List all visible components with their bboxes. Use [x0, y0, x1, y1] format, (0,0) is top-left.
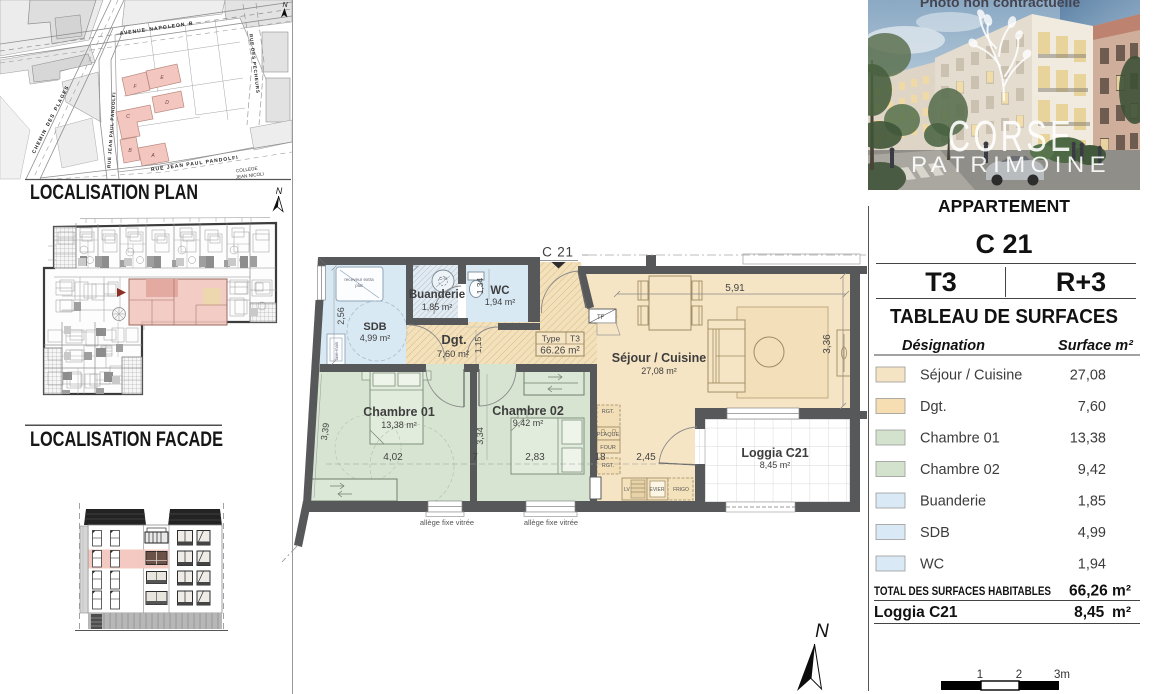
svg-text:13,38: 13,38	[1070, 431, 1106, 447]
svg-text:Désignation: Désignation	[902, 338, 985, 354]
svg-text:C-S: C-S	[439, 276, 447, 281]
svg-text:Chambre 01: Chambre 01	[920, 431, 1000, 447]
svg-text:Chambre 01: Chambre 01	[363, 405, 435, 419]
svg-text:C: C	[126, 114, 130, 120]
svg-text:27,08 m²: 27,08 m²	[641, 366, 677, 376]
svg-text:A: A	[150, 153, 155, 159]
svg-text:R+3: R+3	[1056, 267, 1106, 297]
svg-text:1,15: 1,15	[473, 336, 483, 353]
svg-text:Séjour / Cuisine: Séjour / Cuisine	[920, 368, 1022, 384]
svg-text:Buanderie: Buanderie	[409, 289, 465, 301]
svg-text:TOTAL DES SURFACES HABITABLES: TOTAL DES SURFACES HABITABLES	[874, 584, 1051, 598]
svg-text:13,38 m²: 13,38 m²	[381, 420, 417, 430]
svg-text:Surface m²: Surface m²	[1058, 338, 1134, 354]
svg-text:1,85 m²: 1,85 m²	[422, 302, 453, 312]
svg-text:PLAQUE: PLAQUE	[597, 432, 620, 438]
svg-text:allège fixe vitrée: allège fixe vitrée	[524, 518, 578, 527]
svg-text:7,60 m²: 7,60 m²	[437, 349, 469, 360]
svg-text:T3: T3	[925, 267, 957, 297]
svg-text:C 21: C 21	[542, 245, 574, 260]
svg-text:66.26 m²: 66.26 m²	[540, 346, 580, 357]
svg-text:Type: Type	[542, 334, 561, 344]
svg-text:8,45 m²: 8,45 m²	[760, 460, 791, 470]
svg-text:N: N	[815, 621, 829, 642]
svg-text:27,08: 27,08	[1070, 368, 1106, 384]
svg-text:3m: 3m	[1054, 669, 1070, 681]
svg-text:7,60: 7,60	[1078, 399, 1106, 415]
svg-text:4,99: 4,99	[1078, 525, 1106, 541]
svg-text:D: D	[165, 100, 169, 106]
svg-text:N: N	[276, 186, 283, 196]
svg-text:lave-main: lave-main	[334, 341, 339, 360]
svg-text:WC: WC	[490, 285, 509, 297]
svg-text:LOCALISATION FACADE: LOCALISATION FACADE	[30, 428, 223, 451]
svg-text:C 21: C 21	[975, 229, 1032, 259]
svg-text:3,34: 3,34	[475, 427, 485, 445]
svg-text:Chambre 02: Chambre 02	[492, 404, 564, 418]
svg-text:LV: LV	[624, 487, 630, 493]
svg-text:SDB: SDB	[363, 321, 386, 333]
svg-text:1,94 m²: 1,94 m²	[485, 297, 516, 307]
svg-text:4,99 m²: 4,99 m²	[360, 333, 391, 343]
svg-text:4,02: 4,02	[383, 452, 403, 463]
svg-text:Photo non contractuelle: Photo non contractuelle	[920, 0, 1080, 10]
svg-text:TABLEAU DE SURFACES: TABLEAU DE SURFACES	[890, 306, 1118, 328]
svg-text:1,34: 1,34	[475, 277, 485, 294]
svg-text:Chambre 02: Chambre 02	[920, 462, 1000, 478]
svg-text:APPARTEMENT: APPARTEMENT	[938, 196, 1070, 216]
svg-text:EVIER: EVIER	[649, 487, 664, 493]
svg-text:LOCALISATION PLAN: LOCALISATION PLAN	[30, 181, 198, 204]
svg-text:1: 1	[977, 669, 983, 681]
svg-text:8,45 m²: 8,45 m²	[1074, 604, 1131, 621]
svg-text:2,45: 2,45	[636, 452, 656, 463]
svg-text:FRIGO: FRIGO	[673, 487, 689, 493]
svg-text:1,85: 1,85	[1078, 494, 1106, 510]
svg-text:Loggia C21: Loggia C21	[874, 604, 958, 621]
svg-text:3,36: 3,36	[822, 334, 833, 354]
svg-text:2: 2	[1016, 669, 1022, 681]
svg-text:Dgt.: Dgt.	[441, 332, 466, 347]
svg-text:Buanderie: Buanderie	[920, 494, 986, 510]
svg-text:plat: plat	[355, 283, 363, 288]
svg-text:WC: WC	[920, 557, 944, 573]
svg-text:7: 7	[472, 452, 478, 463]
svg-text:2,56: 2,56	[336, 307, 346, 325]
svg-text:allège fixe vitrée: allège fixe vitrée	[420, 518, 474, 527]
svg-text:2,83: 2,83	[525, 452, 545, 463]
svg-text:T3: T3	[570, 334, 580, 344]
svg-text:Séjour / Cuisine: Séjour / Cuisine	[612, 351, 707, 365]
svg-text:Dgt.: Dgt.	[920, 399, 947, 415]
svg-text:receveur extra: receveur extra	[344, 277, 374, 282]
svg-text:9,42: 9,42	[1078, 462, 1106, 478]
svg-text:FOUR: FOUR	[600, 445, 616, 451]
svg-text:SDB: SDB	[920, 525, 950, 541]
svg-text:18: 18	[594, 452, 606, 463]
svg-text:9,42 m²: 9,42 m²	[513, 418, 544, 428]
svg-text:Loggia C21: Loggia C21	[741, 446, 808, 460]
svg-text:RGT.: RGT.	[602, 409, 615, 415]
svg-text:1,94: 1,94	[1078, 557, 1106, 573]
svg-text:PATRIMOINE: PATRIMOINE	[911, 152, 1111, 177]
svg-text:5,91: 5,91	[725, 283, 745, 294]
svg-text:66,26 m²: 66,26 m²	[1069, 583, 1131, 600]
svg-text:TF: TF	[597, 315, 605, 321]
